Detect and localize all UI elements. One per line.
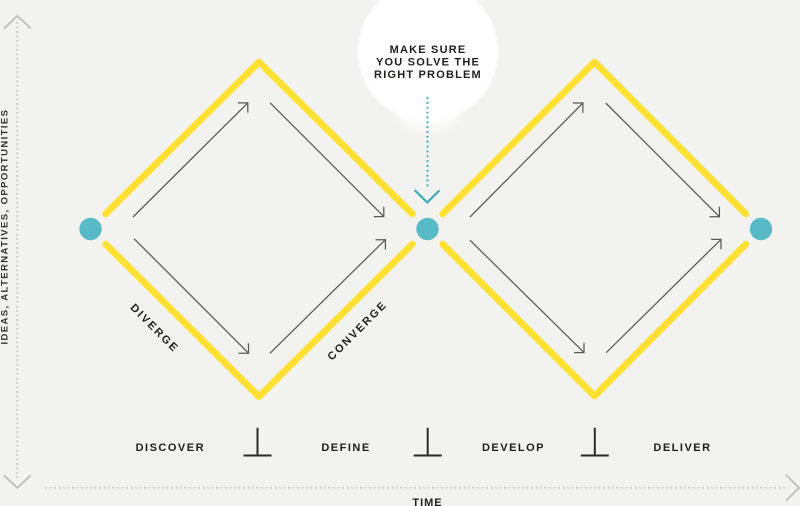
svg-text:DISCOVER: DISCOVER (136, 442, 205, 454)
svg-text:YOU SOLVE THE: YOU SOLVE THE (376, 57, 480, 69)
svg-text:DELIVER: DELIVER (653, 442, 711, 454)
svg-text:RIGHT PROBLEM: RIGHT PROBLEM (374, 69, 482, 81)
svg-text:DEVELOP: DEVELOP (482, 442, 545, 454)
svg-text:MAKE SURE: MAKE SURE (390, 44, 467, 56)
svg-text:DEFINE: DEFINE (321, 442, 370, 454)
svg-text:TIME: TIME (412, 497, 442, 506)
svg-text:IDEAS, ALTERNATIVES, OPPORTUNI: IDEAS, ALTERNATIVES, OPPORTUNITIES (0, 109, 10, 345)
